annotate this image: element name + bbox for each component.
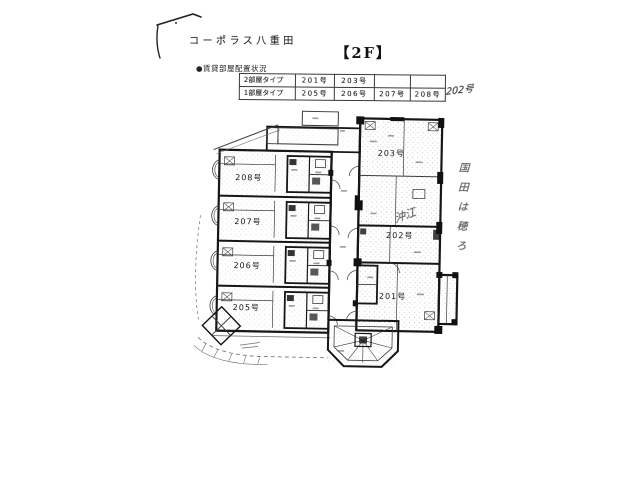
unit-label-203: 203号: [378, 149, 405, 159]
floor-plan-drawing: 208号 207号 206号 205号 203号 202号 201号: [187, 97, 492, 383]
room-number-cell: 201号: [295, 74, 334, 87]
floor-label: 【2F】: [335, 42, 392, 63]
occupancy-table: 2部屋タイプ 201号 203号 1部屋タイプ 205号 206号 207号 2…: [239, 73, 446, 102]
room-number-cell: 207号: [374, 88, 410, 101]
room-type-cell: 2部屋タイプ: [239, 74, 295, 87]
scanned-floorplan-page: コーポラス八重田 【2F】 ●賃貸部屋配置状況 2部屋タイプ 201号 203号…: [0, 0, 640, 480]
room-number-cell: 203号: [334, 74, 374, 87]
document-title: コーポラス八重田: [189, 32, 297, 47]
handwritten-room-note: 202号: [446, 80, 474, 98]
room-number-cell: 208号: [410, 88, 445, 101]
unit-label-205: 205号: [233, 303, 260, 313]
room-number-cell: [374, 75, 410, 88]
room-number-cell: 206号: [334, 87, 374, 100]
room-number-cell: [410, 75, 445, 88]
unit-label-206: 206号: [233, 261, 260, 271]
unit-label-207: 207号: [234, 217, 261, 227]
unit-label-208: 208号: [235, 173, 262, 183]
unit-label-202: 202号: [386, 231, 413, 241]
unit-label-201: 201号: [379, 292, 406, 302]
